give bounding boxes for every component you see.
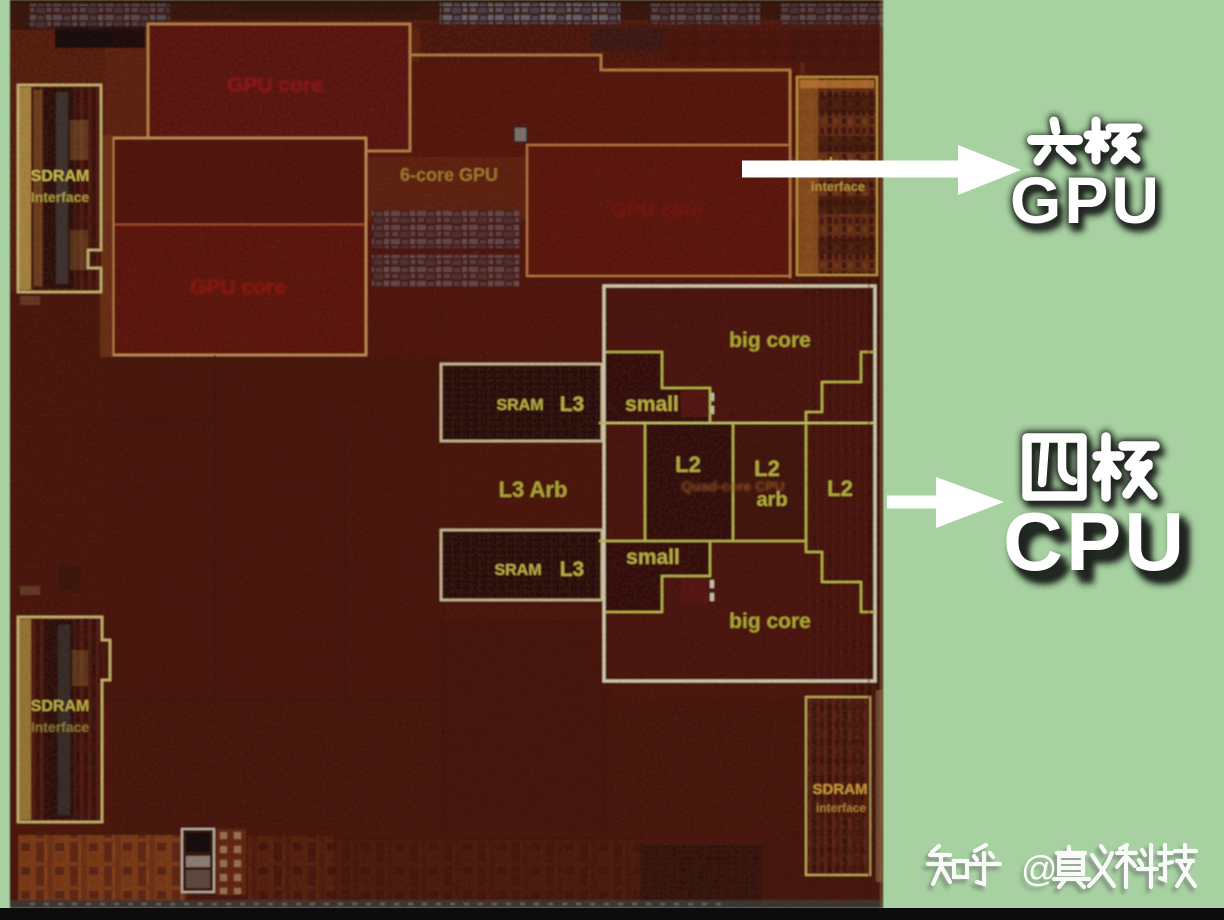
svg-text:CPU: CPU	[1003, 495, 1187, 588]
svg-text:@: @	[1021, 848, 1058, 889]
svg-text:GPU: GPU	[1010, 163, 1162, 237]
